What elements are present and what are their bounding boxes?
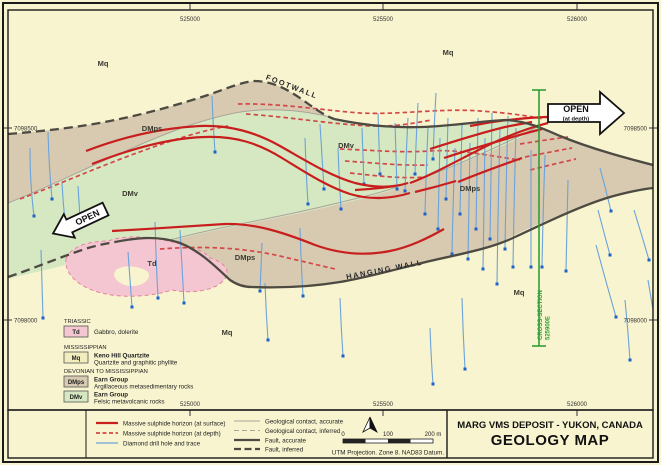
era-triassic: TRIASSIC <box>64 319 91 325</box>
map-subtitle: MARG VMS DEPOSIT - YUKON, CANADA <box>457 420 643 431</box>
unit-label-mq: Mq <box>98 59 109 68</box>
svg-text:OPEN: OPEN <box>563 104 589 114</box>
svg-text:Felsic metavolcanic rocks: Felsic metavolcanic rocks <box>94 399 165 406</box>
svg-text:200 m: 200 m <box>425 432 442 438</box>
svg-text:525900E: 525900E <box>546 316 552 340</box>
svg-text:Fault, accurate: Fault, accurate <box>265 438 306 445</box>
unit-label-dmv: DMv <box>338 141 355 150</box>
svg-text:Earn Group: Earn Group <box>94 377 128 384</box>
svg-text:Geological contact, inferred: Geological contact, inferred <box>265 428 341 435</box>
map-title: GEOLOGY MAP <box>491 432 610 449</box>
unit-label-mq: Mq <box>443 48 454 57</box>
unit-label-dmps: DMps <box>142 124 162 133</box>
easting-label: 525500 <box>373 402 394 408</box>
northing-label: 7098500 <box>624 127 648 133</box>
svg-text:Gabbro, dolerite: Gabbro, dolerite <box>94 329 139 336</box>
svg-text:Keno Hill Quartzite: Keno Hill Quartzite <box>94 353 150 360</box>
map-body: CROSS-SECTION 525900E FOOTWALL HANGING W… <box>8 10 658 410</box>
easting-label: 526000 <box>567 17 588 23</box>
svg-text:Geological contact, accurate: Geological contact, accurate <box>265 419 344 426</box>
northing-label: 7098000 <box>14 319 38 325</box>
svg-text:Td: Td <box>72 330 80 336</box>
map-svg: CROSS-SECTION 525900E FOOTWALL HANGING W… <box>0 0 661 465</box>
easting-label: 525000 <box>180 17 201 23</box>
easting-label: 525000 <box>180 402 201 408</box>
svg-text:Earn Group: Earn Group <box>94 392 128 399</box>
unit-label-td: Td <box>147 259 157 268</box>
svg-text:Diamond drill hole and trace: Diamond drill hole and trace <box>123 441 201 448</box>
unit-label-mq: Mq <box>514 288 525 297</box>
northing-label: 7098000 <box>624 319 648 325</box>
svg-text:CROSS-SECTION: CROSS-SECTION <box>538 290 544 340</box>
unit-label-dmv: DMv <box>122 189 139 198</box>
svg-text:Massive sulphide horizon (at s: Massive sulphide horizon (at surface) <box>123 421 225 428</box>
svg-text:Massive sulphide horizon (at d: Massive sulphide horizon (at depth) <box>123 431 221 438</box>
unit-label-mq: Mq <box>222 328 233 337</box>
svg-text:Fault, inferred: Fault, inferred <box>265 447 304 454</box>
northing-label: 7098500 <box>14 127 38 133</box>
unit-label-dmps: DMps <box>460 184 480 193</box>
svg-text:100: 100 <box>383 432 394 438</box>
svg-text:(at depth): (at depth) <box>563 117 589 123</box>
svg-text:DMps: DMps <box>68 380 85 386</box>
easting-label: 525500 <box>373 17 394 23</box>
svg-text:Argillaceous metasedimentary r: Argillaceous metasedimentary rocks <box>94 384 193 391</box>
unit-label-dmps: DMps <box>235 253 255 262</box>
geology-map-page: CROSS-SECTION 525900E FOOTWALL HANGING W… <box>0 0 661 465</box>
era-devonian-mississippian: DEVONIAN TO MISSISSIPPIAN <box>64 369 148 375</box>
projection-note: UTM Projection. Zone 8. NAD83 Datum. <box>332 450 445 457</box>
era-mississippian: MISSISSIPPIAN <box>64 345 107 351</box>
svg-text:Quartzite and graphitic phylli: Quartzite and graphitic phyllite <box>94 360 178 367</box>
svg-text:DMv: DMv <box>70 395 83 401</box>
easting-label: 526000 <box>567 402 588 408</box>
svg-text:Mq: Mq <box>72 356 81 362</box>
